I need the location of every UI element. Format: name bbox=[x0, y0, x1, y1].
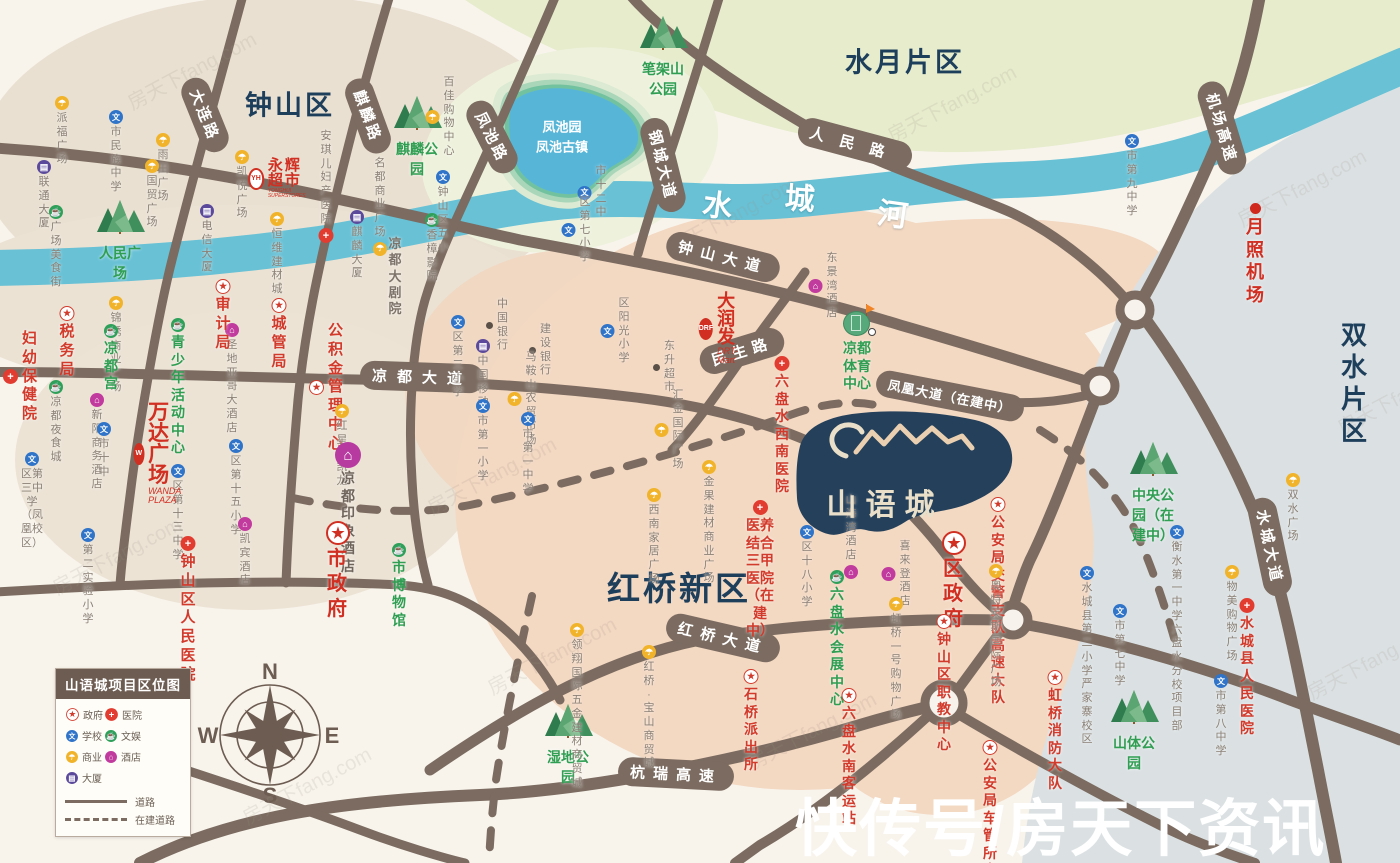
legend-item-label: 酒店 bbox=[121, 749, 141, 764]
tower-icon: ▤ bbox=[66, 772, 78, 784]
legend-item-school: 文学校 bbox=[65, 728, 104, 743]
legend-road-solid: 道路 bbox=[65, 794, 181, 809]
legend-box: 山语城项目区位图 ★政府+医院文学校☕文娱☂商业⌂酒店▤大厦 道路 在建道路 bbox=[55, 668, 191, 837]
river-name-char: 河 bbox=[875, 188, 911, 236]
gov-icon: ★ bbox=[66, 708, 79, 721]
district-label: 钟山区 bbox=[245, 84, 335, 123]
hotel-icon: ⌂ bbox=[105, 751, 117, 763]
legend-road-dashed: 在建道路 bbox=[65, 812, 181, 827]
road-name-label: 杭瑞高速 bbox=[617, 756, 734, 791]
project-name-label: 山语城 bbox=[827, 480, 944, 524]
svg-text:E: E bbox=[325, 723, 340, 748]
svg-text:N: N bbox=[262, 659, 278, 684]
legend-item-label: 商业 bbox=[82, 749, 102, 764]
legend-item-label: 大厦 bbox=[82, 770, 102, 785]
river-name-char: 水 bbox=[700, 179, 736, 227]
district-label: 双水片区 bbox=[1335, 321, 1372, 449]
legend-item-label: 学校 bbox=[82, 728, 102, 743]
legend-item-culture: ☕文娱 bbox=[104, 728, 143, 743]
river-name-char: 城 bbox=[784, 173, 817, 219]
hospital-icon: + bbox=[105, 708, 118, 721]
watermark-banner: 快传号/房天下资讯 bbox=[795, 778, 1326, 863]
legend-items: ★政府+医院文学校☕文娱☂商业⌂酒店▤大厦 bbox=[65, 707, 181, 791]
legend-item-hotel: ⌂酒店 bbox=[104, 749, 143, 764]
district-label: 红桥新区 bbox=[607, 562, 751, 610]
road-name-label: 凉都大道 bbox=[360, 360, 485, 393]
lake-label: 凤池园 凤池古镇 bbox=[536, 118, 588, 157]
legend-item-biz: ☂商业 bbox=[65, 749, 104, 764]
solid-road-swatch bbox=[65, 800, 127, 803]
dashed-road-swatch bbox=[65, 818, 127, 821]
culture-icon: ☕ bbox=[105, 730, 117, 742]
biz-icon: ☂ bbox=[66, 751, 78, 763]
legend-item-tower: ▤大厦 bbox=[65, 770, 104, 785]
legend-item-label: 医院 bbox=[122, 707, 142, 722]
svg-text:W: W bbox=[198, 723, 219, 748]
legend-title: 山语城项目区位图 bbox=[56, 669, 190, 699]
legend-item-hospital: +医院 bbox=[104, 707, 143, 722]
legend-item-label: 文娱 bbox=[121, 728, 141, 743]
district-label: 水月片区 bbox=[845, 41, 965, 80]
school-icon: 文 bbox=[66, 730, 78, 742]
legend-item-label: 政府 bbox=[83, 707, 103, 722]
location-map: N S W E 房天下fang.com房天下fang.com房天下fang.co… bbox=[0, 0, 1400, 863]
legend-item-gov: ★政府 bbox=[65, 707, 104, 722]
